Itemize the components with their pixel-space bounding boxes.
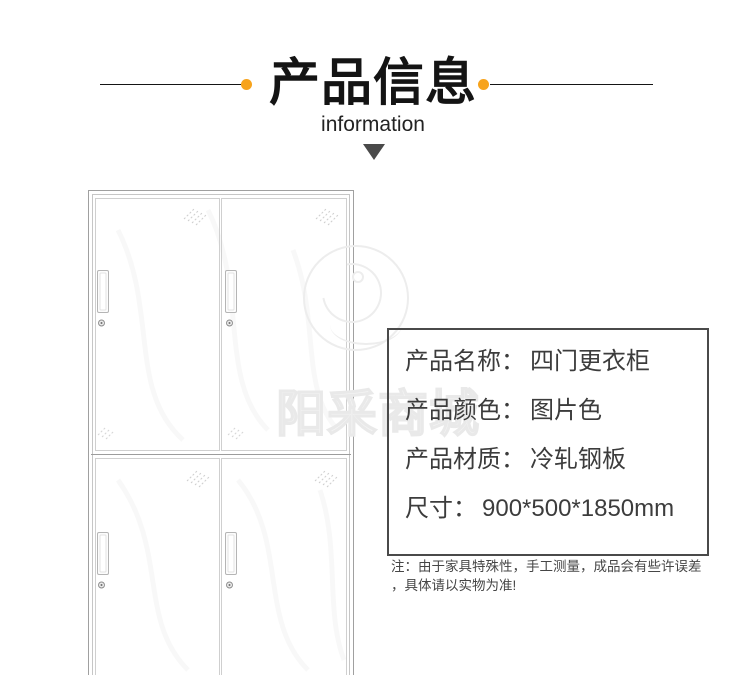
measurement-note: 注：由于家具特殊性，手工测量，成品会有些许误差 ，具体请以实物为准! — [391, 557, 721, 595]
cabinet-door-top-left — [96, 199, 220, 451]
header-accent-dot-right — [478, 79, 489, 90]
info-row-product-name: 产品名称：四门更衣柜 — [405, 337, 707, 386]
note-line-1: 注：由于家具特殊性，手工测量，成品会有些许误差 — [391, 557, 721, 576]
section-title: 产品信息 — [238, 52, 508, 114]
product-info-rows: 产品名称：四门更衣柜 产品颜色：图片色 产品材质：冷轧钢板 尺寸：900*500… — [405, 337, 707, 533]
arrow-down-icon — [363, 144, 385, 160]
info-label: 产品名称： — [405, 348, 525, 375]
info-row-product-material: 产品材质：冷轧钢板 — [405, 435, 707, 484]
product-info-box: 产品名称：四门更衣柜 产品颜色：图片色 产品材质：冷轧钢板 尺寸：900*500… — [387, 328, 709, 556]
info-value: 冷轧钢板 — [530, 446, 626, 473]
info-row-product-color: 产品颜色：图片色 — [405, 386, 707, 435]
note-line-2: ，具体请以实物为准! — [391, 576, 721, 595]
section-subtitle: information — [238, 114, 508, 136]
header-divider-line-right — [490, 84, 653, 85]
header-divider-line-left — [100, 84, 242, 85]
cabinet-door-bottom-left — [96, 459, 220, 675]
info-label: 产品材质： — [405, 446, 525, 473]
info-label: 产品颜色： — [405, 397, 525, 424]
info-value: 四门更衣柜 — [530, 348, 650, 375]
cabinet-door-bottom-right — [222, 459, 347, 675]
info-value: 图片色 — [530, 397, 602, 424]
info-row-dimensions: 尺寸：900*500*1850mm — [405, 484, 707, 533]
product-info-page: 产品信息 information 阳采商城 — [0, 0, 750, 675]
info-label: 尺寸： — [405, 495, 477, 522]
info-value: 900*500*1850mm — [482, 495, 674, 522]
product-line-drawing — [88, 190, 355, 675]
